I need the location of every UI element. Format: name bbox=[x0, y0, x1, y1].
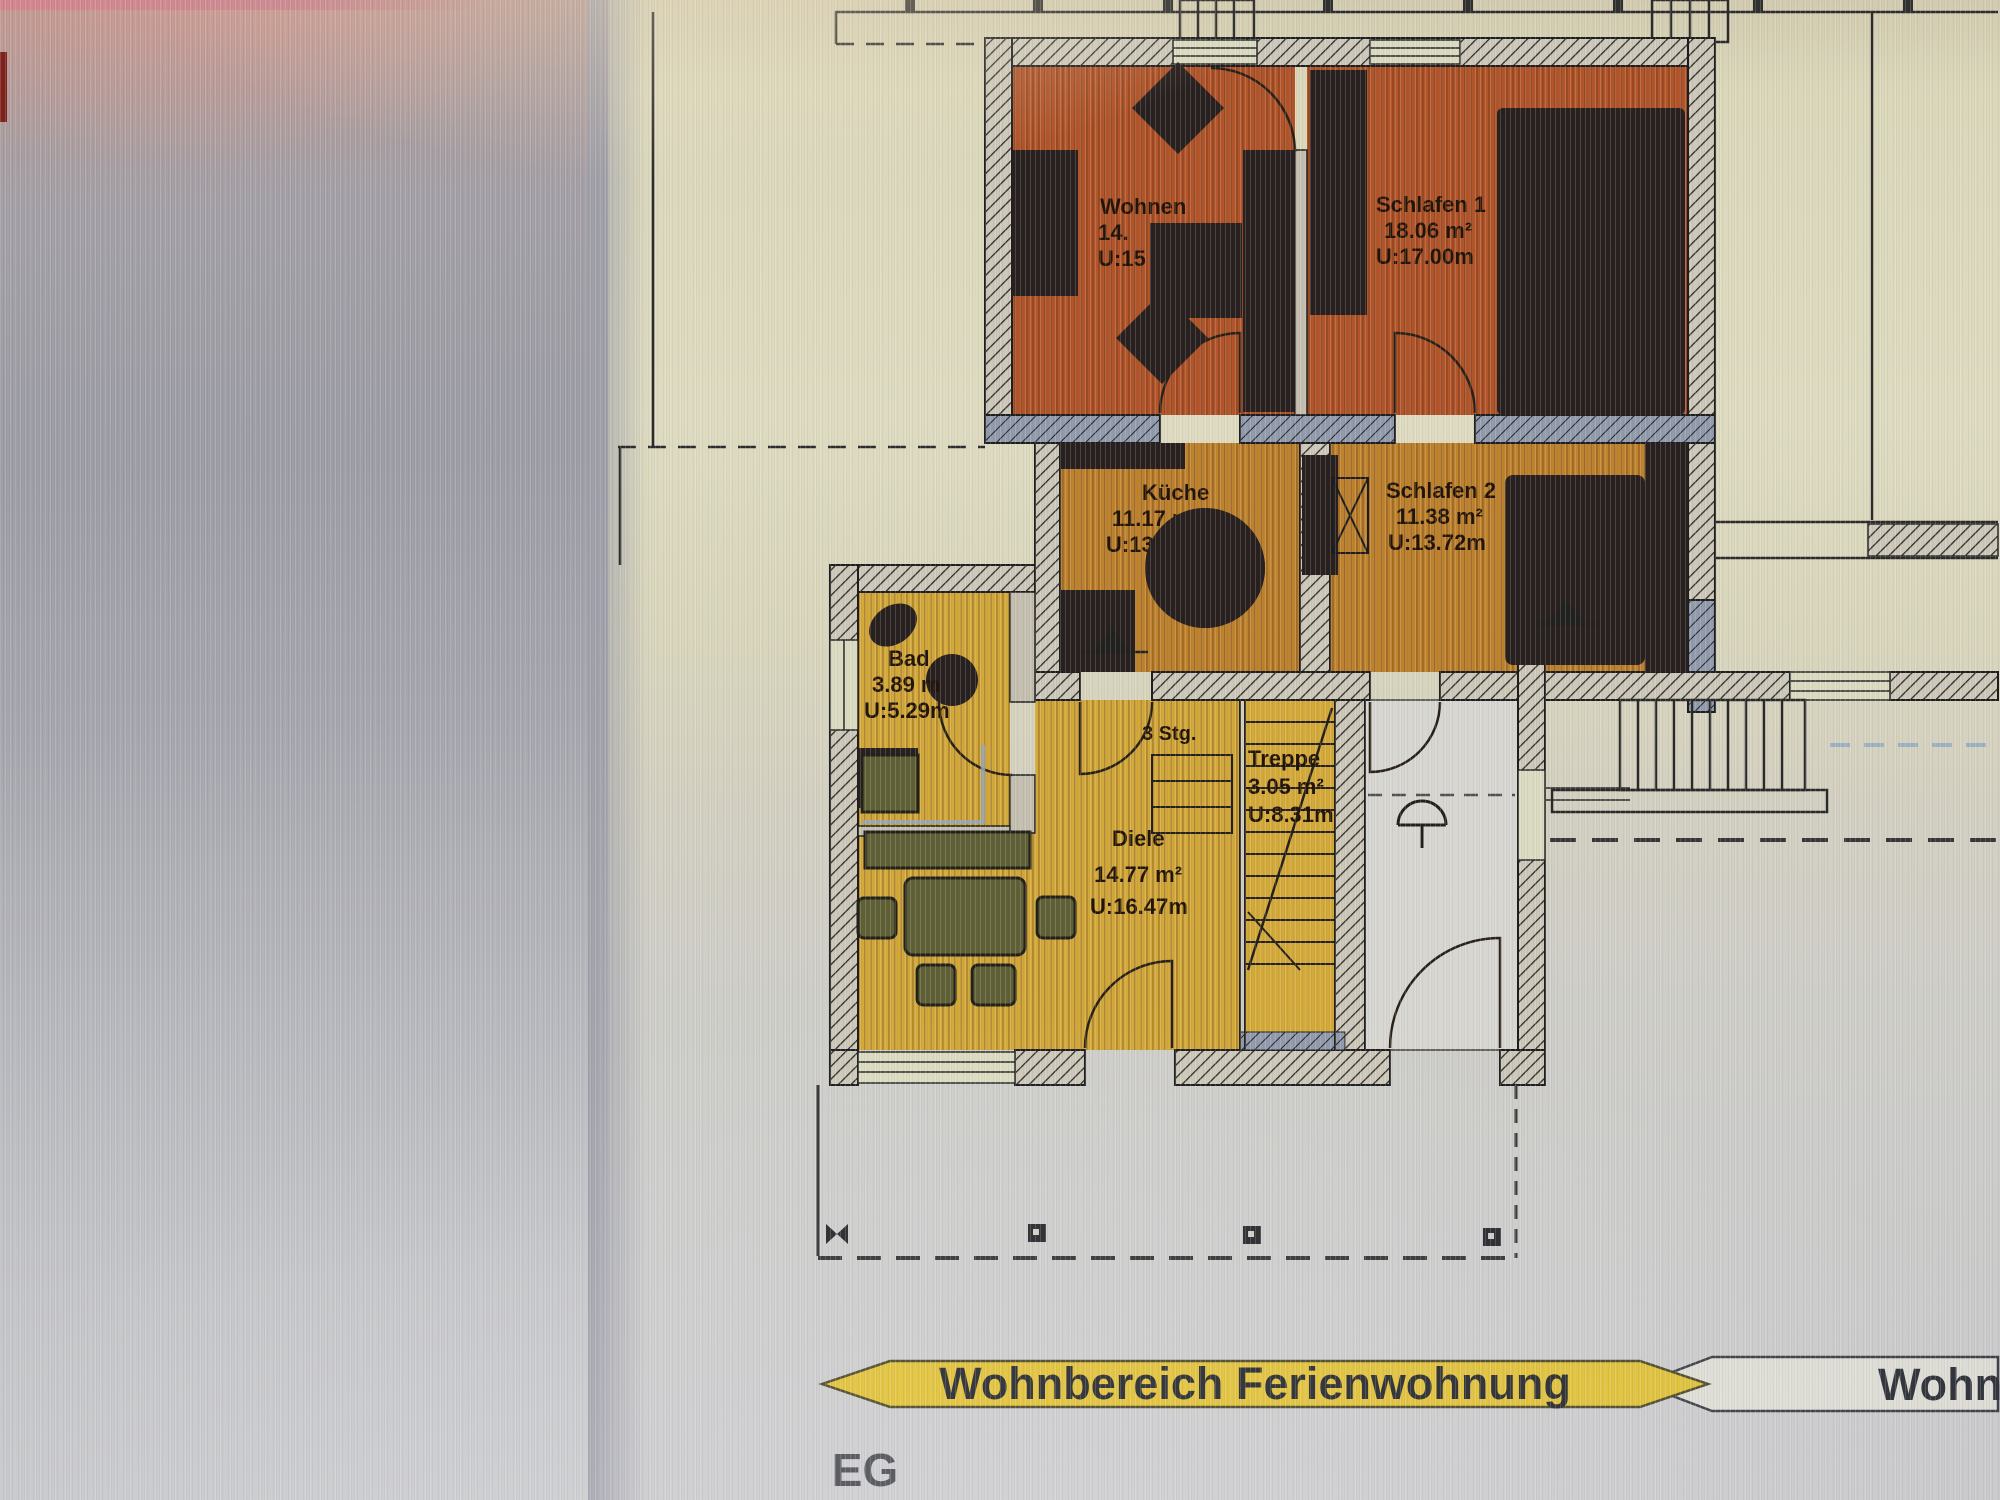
marker-bowtie bbox=[826, 1224, 848, 1244]
chimney-boxes bbox=[1180, 0, 1728, 42]
label-wohnen-name: Wohnen bbox=[1100, 194, 1186, 219]
bed-schlafen1 bbox=[1497, 108, 1685, 415]
window-diele-bottom bbox=[858, 1052, 1015, 1083]
label-schlafen1-name: Schlafen 1 bbox=[1376, 192, 1486, 217]
label-kueche-name: Küche bbox=[1142, 480, 1209, 505]
label-treppe-umfang: U:8.31m bbox=[1248, 802, 1334, 827]
cabinet-diele bbox=[862, 755, 918, 812]
legend-banners: Wohnbereich Ferienwohnung Wohnb bbox=[822, 1357, 2000, 1411]
floor-plan: Wohnen 14. U:15 Schlafen 1 18.06 m² U:17… bbox=[0, 0, 2000, 1500]
wardrobe-wohnen-right bbox=[1243, 150, 1295, 412]
terrace-boundary bbox=[818, 1085, 1516, 1258]
chair-diele-left bbox=[858, 898, 896, 938]
red-edge-artifact bbox=[0, 52, 7, 122]
bed-schlafen2 bbox=[1505, 475, 1645, 665]
window-top-1 bbox=[1173, 40, 1257, 64]
terrace-markers bbox=[826, 1224, 1501, 1246]
counter-kueche-left bbox=[1060, 590, 1135, 672]
label-diele-area: 14.77 m² bbox=[1094, 862, 1182, 887]
wardrobe-wohnen-left bbox=[1012, 150, 1078, 296]
terrace-wall-hatch-right bbox=[1868, 524, 1998, 556]
label-bad-name: Bad bbox=[888, 646, 930, 671]
table-diele bbox=[905, 878, 1025, 955]
label-wohnen-area: 14. bbox=[1098, 220, 1129, 245]
label-schlafen2-area: 11.38 m² bbox=[1396, 504, 1483, 529]
wardrobe-schlafen1 bbox=[1310, 70, 1367, 315]
screen-photo: Wohnen 14. U:15 Schlafen 1 18.06 m² U:17… bbox=[0, 0, 2000, 1500]
label-schlafen1-umfang: U:17.00m bbox=[1376, 244, 1474, 269]
banner-yellow-text: Wohnbereich Ferienwohnung bbox=[939, 1358, 1571, 1409]
wall-bad-right-a bbox=[1010, 592, 1035, 702]
chair-diele-right bbox=[1037, 897, 1075, 938]
label-wohnen-umfang: U:15 bbox=[1098, 246, 1146, 271]
stair-base-blue bbox=[1240, 1032, 1345, 1050]
label-treppe-name: Treppe bbox=[1248, 746, 1320, 771]
wall-wohnen-schlafen1 bbox=[1295, 150, 1307, 415]
label-bad-umfang: U:5.29m bbox=[864, 698, 950, 723]
chair-diele-bottom1 bbox=[917, 965, 955, 1005]
floor-label-eg: EG bbox=[832, 1444, 898, 1496]
window-top-2 bbox=[1370, 40, 1460, 64]
label-3stg: 3 Stg. bbox=[1142, 723, 1196, 745]
sideboard-diele bbox=[865, 832, 1030, 868]
counter-kueche-top bbox=[1060, 443, 1185, 469]
label-diele-umfang: U:16.47m bbox=[1090, 894, 1188, 919]
label-schlafen2-name: Schlafen 2 bbox=[1386, 478, 1496, 503]
label-schlafen1-area: 18.06 m² bbox=[1384, 218, 1472, 243]
window-flur-right bbox=[1518, 770, 1545, 860]
pink-reflection-strip bbox=[0, 0, 480, 10]
room-flur-white-floor bbox=[1365, 700, 1518, 1050]
label-diele-name: Diele bbox=[1112, 826, 1165, 851]
label-bad-area: 3.89 m bbox=[872, 672, 941, 697]
label-treppe-area: 3.05 m² bbox=[1248, 774, 1324, 799]
table-kueche-top bbox=[1145, 508, 1265, 628]
banner-white-text: Wohnb bbox=[1878, 1359, 2000, 1410]
wardrobe-schlafen2-right bbox=[1645, 443, 1688, 672]
wall-bad-right-b bbox=[1010, 775, 1035, 833]
exterior-stair bbox=[1552, 700, 1827, 812]
label-schlafen2-umfang: U:13.72m bbox=[1388, 530, 1486, 555]
window-band-right bbox=[1790, 672, 1890, 700]
chair-diele-bottom2 bbox=[972, 965, 1015, 1005]
